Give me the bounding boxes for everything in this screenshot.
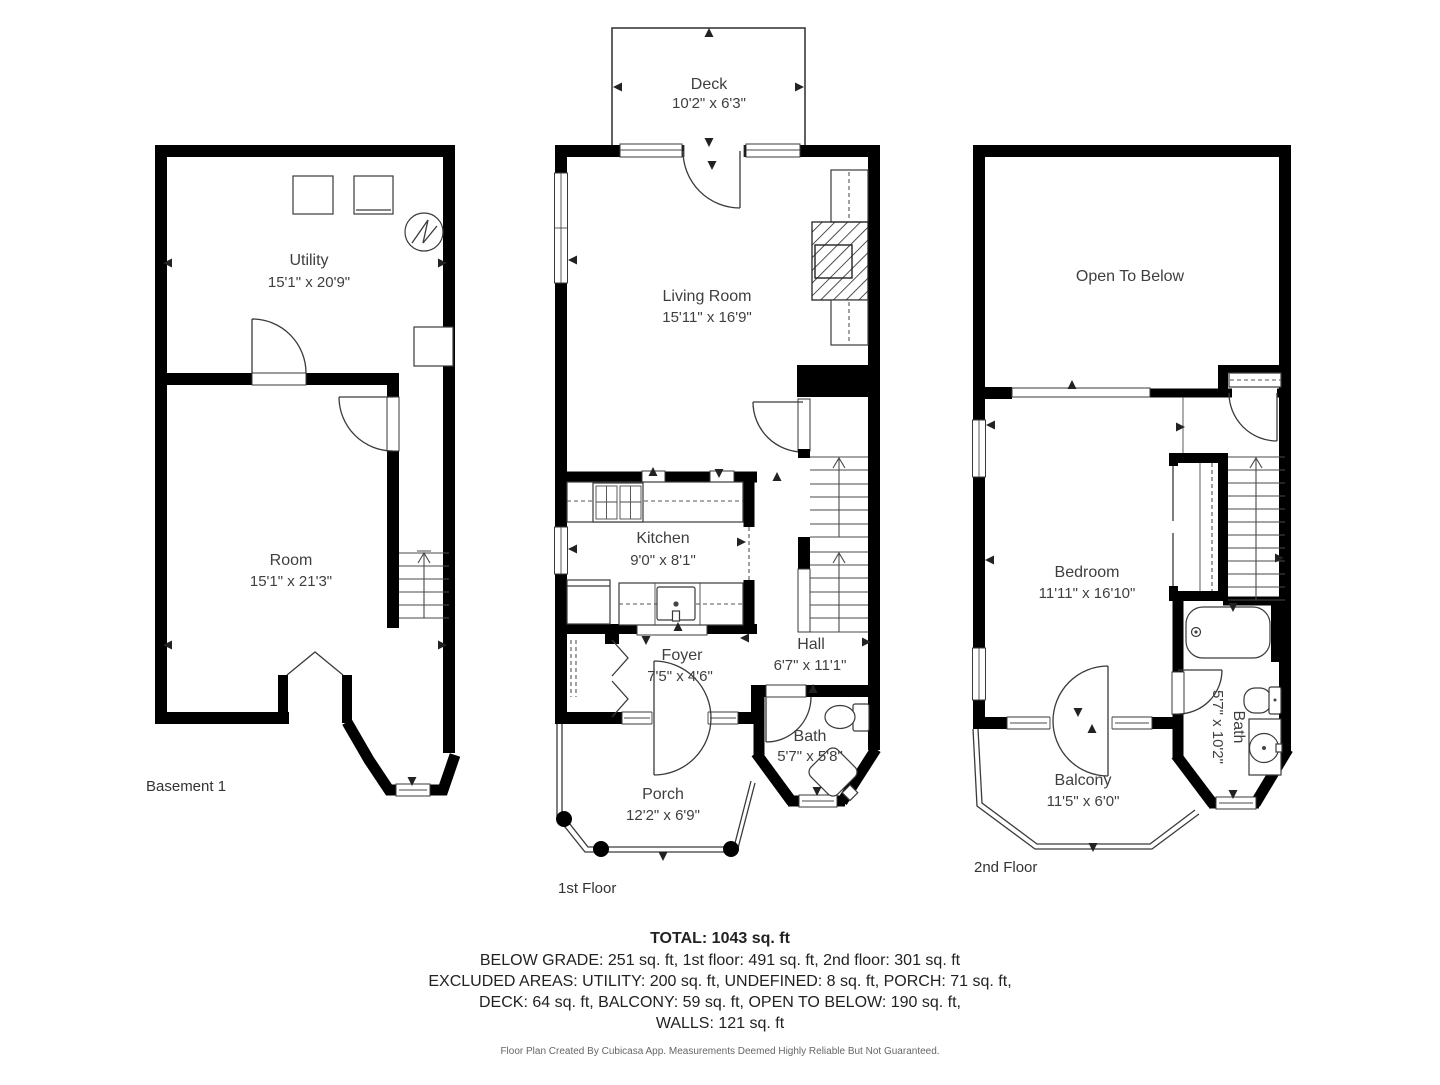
first-stairs (798, 449, 868, 632)
floor-label-second: 2nd Floor (974, 859, 1037, 876)
toilet-icon (1244, 688, 1271, 713)
room-dims-balcony: 11'5" x 6'0" (1047, 793, 1120, 810)
stair-landing-door (753, 402, 803, 452)
stove-icon (593, 483, 643, 522)
room-dims-kitchen: 9'0" x 8'1" (630, 552, 696, 569)
room-label-porch: Porch (642, 786, 684, 803)
fireplace-icon (812, 170, 868, 345)
foyer-closet (571, 640, 628, 717)
room-label-hall: Hall (797, 636, 825, 653)
utility-sink-icon (414, 327, 453, 366)
room-dims-bath2: 5'7" x 10'2" (1209, 690, 1226, 764)
room-label-bath2: Bath (1230, 711, 1247, 744)
summary-excluded-2: DECK: 64 sq. ft, BALCONY: 59 sq. ft, OPE… (479, 994, 961, 1011)
porch-column-icon (723, 841, 739, 857)
room-dims-living-room: 15'11" x 16'9" (662, 309, 752, 326)
room-dims-hall: 6'7" x 11'1" (774, 657, 847, 674)
room-dims-utility: 15'1" x 20'9" (268, 274, 350, 291)
room-label-deck: Deck (691, 76, 728, 93)
open-to-below-railing (1012, 373, 1281, 453)
floor-plan-page: Utility 15'1" x 20'9" Room 15'1" x 21'3"… (0, 0, 1440, 1080)
basement-doors (252, 319, 399, 675)
area-summary: TOTAL: 1043 sq. ft BELOW GRADE: 251 sq. … (428, 930, 1011, 1057)
room-label-kitchen: Kitchen (636, 530, 689, 547)
water-heater-icon (405, 213, 443, 251)
bifold-door-icon (612, 640, 628, 717)
porch-column-icon (556, 811, 572, 827)
room-label-foyer: Foyer (662, 647, 704, 664)
room-label-room: Room (270, 552, 313, 569)
room-dims-room: 15'1" x 21'3" (250, 573, 332, 590)
room-label-living-room: Living Room (663, 288, 752, 305)
disclaimer-text: Floor Plan Created By Cubicasa App. Meas… (500, 1046, 939, 1057)
floor-plan-basement: Utility 15'1" x 20'9" Room 15'1" x 21'3"… (146, 151, 455, 796)
summary-excluded-1: EXCLUDED AREAS: UTILITY: 200 sq. ft, UND… (428, 973, 1011, 990)
upper-landing-door (1229, 393, 1277, 441)
room-dims-porch: 12'2" x 6'9" (626, 807, 700, 824)
washer-icon (293, 176, 333, 214)
basement-windows (396, 784, 430, 796)
room-label-bedroom: Bedroom (1055, 564, 1120, 581)
floor-plan-first: Deck 10'2" x 6'3" Living Room 15'11" x 1… (555, 28, 881, 897)
wardrobe-closet (1169, 453, 1212, 601)
room-label-utility: Utility (289, 252, 328, 269)
room-label-balcony: Balcony (1055, 772, 1112, 789)
room-dims-foyer: 7'5" x 4'6" (647, 668, 713, 685)
balcony-outline (973, 729, 1199, 849)
double-door-icon (287, 652, 343, 675)
room-dims-bedroom: 11'11" x 16'10" (1039, 585, 1136, 602)
floor-plan-canvas: Utility 15'1" x 20'9" Room 15'1" x 21'3"… (0, 0, 1440, 1080)
floor-plan-second: Open To Below Bedroom 11'11" x 16'10" Ba… (973, 145, 1292, 876)
bath2-fixtures (1186, 607, 1282, 775)
room-dims-deck: 10'2" x 6'3" (672, 95, 746, 112)
second-walls (973, 145, 1291, 804)
room-label-bath1: Bath (794, 728, 827, 745)
summary-excluded-3: WALLS: 121 sq. ft (656, 1015, 785, 1032)
floor-label-first: 1st Floor (558, 880, 616, 897)
room-dims-bath1: 5'7" x 5'8" (777, 748, 843, 765)
basement-walls (155, 151, 455, 790)
floor-label-basement: Basement 1 (146, 778, 226, 795)
room-label-open-to-below: Open To Below (1076, 268, 1185, 285)
porch-column-icon (593, 841, 609, 857)
summary-total: TOTAL: 1043 sq. ft (650, 930, 791, 947)
basement-fixtures (293, 176, 453, 366)
summary-by-floor: BELOW GRADE: 251 sq. ft, 1st floor: 491 … (480, 952, 961, 969)
dryer-icon (354, 176, 393, 214)
deck-door (683, 151, 740, 208)
second-stairs (1228, 457, 1285, 600)
basement-stairs (399, 551, 449, 618)
